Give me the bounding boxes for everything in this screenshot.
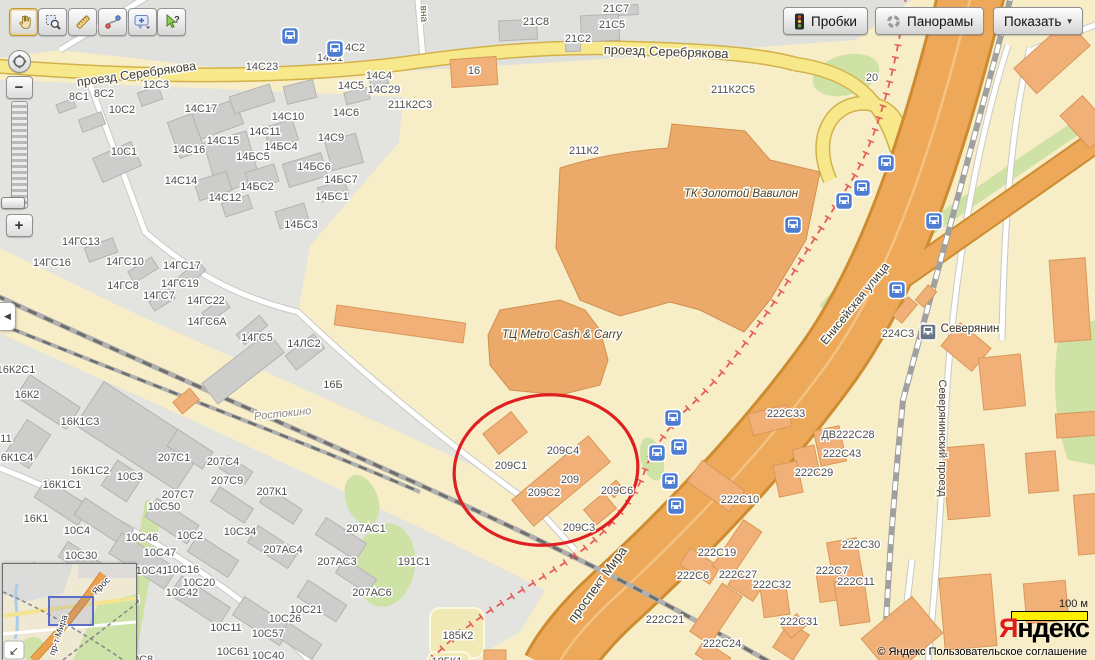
building-label: 207АС1 bbox=[346, 523, 386, 535]
building-label: 209С6 bbox=[601, 485, 633, 497]
building-label: 209С4 bbox=[547, 445, 579, 457]
yandex-maps-app: 14С214С114С2312С38С18С210С214С1714С414С5… bbox=[0, 0, 1095, 660]
building-label: 14С14 bbox=[165, 175, 197, 187]
building-label: 14ГС7 bbox=[143, 290, 175, 302]
building-label: 185К1 bbox=[432, 656, 463, 660]
building-label: 207С1 bbox=[158, 452, 190, 464]
building-label: 207С4 bbox=[207, 456, 239, 468]
street-label: Северянинский проезд bbox=[936, 379, 948, 497]
bus-stop-icon[interactable] bbox=[854, 180, 871, 197]
bus-stop-icon[interactable] bbox=[668, 498, 685, 515]
building-label: 222С6 bbox=[677, 570, 709, 582]
building-label: 14ГС16 bbox=[33, 257, 71, 269]
arrow-down-left-icon: ↙ bbox=[9, 644, 19, 658]
building-label: 10С11 bbox=[210, 622, 242, 634]
building-orange[interactable] bbox=[978, 354, 1025, 410]
zoom-select-tool-button[interactable] bbox=[38, 8, 67, 36]
building-label: 8С2 bbox=[94, 88, 114, 100]
building-label: 222С32 bbox=[753, 579, 792, 591]
add-placemark-tool-icon bbox=[134, 14, 151, 30]
building-label: 222С43 bbox=[823, 448, 862, 460]
building-label: 10С1 bbox=[111, 146, 137, 158]
building-label: 10С42 bbox=[166, 587, 198, 599]
pan-tool-button[interactable] bbox=[9, 8, 38, 36]
scale-label: 100 м bbox=[1059, 598, 1088, 610]
building-label: 14ГС8 bbox=[107, 280, 139, 292]
building-label: 14БС7 bbox=[324, 174, 357, 186]
traffic-button[interactable]: Пробки bbox=[783, 7, 868, 35]
building-label: 10С40 bbox=[252, 650, 284, 660]
building-label: 11 bbox=[0, 433, 11, 445]
inspect-tool-icon: ? bbox=[164, 14, 180, 30]
building-label: 224С3 bbox=[882, 328, 914, 340]
show-dropdown-button[interactable]: Показать ▾ bbox=[993, 7, 1083, 35]
zoom-slider-track[interactable] bbox=[11, 101, 28, 209]
building-label: 222С10 bbox=[721, 494, 760, 506]
minimap-gray-area2 bbox=[78, 564, 136, 578]
building-orange[interactable] bbox=[484, 650, 506, 660]
traffic-button-label: Пробки bbox=[811, 14, 857, 29]
building-orange[interactable] bbox=[1025, 451, 1058, 493]
building-label: 14С10 bbox=[272, 111, 304, 123]
building-label: 10С2 bbox=[177, 530, 203, 542]
building-label: 10С57 bbox=[252, 628, 284, 640]
building-label: 16К1С2 bbox=[71, 465, 110, 477]
building-orange[interactable] bbox=[942, 444, 990, 519]
bus-stop-icon[interactable] bbox=[649, 445, 666, 462]
building-label: 207С9 bbox=[211, 475, 243, 487]
bus-stop-icon[interactable] bbox=[665, 410, 682, 427]
building-label: 14ГС6А bbox=[187, 316, 227, 328]
bus-stop-icon[interactable] bbox=[282, 28, 299, 45]
building-label: 14С6 bbox=[333, 107, 359, 119]
building-label: 207АС3 bbox=[317, 556, 357, 568]
zoom-select-tool-icon bbox=[45, 14, 61, 30]
building-label: 16К1С4 bbox=[0, 452, 33, 464]
building-label: 14ЛС2 bbox=[287, 338, 321, 350]
building-label: 222С11 bbox=[837, 576, 875, 588]
building-label: 16К1С3 bbox=[61, 416, 100, 428]
building-label: 10С47 bbox=[144, 547, 176, 559]
add-placemark-tool-button[interactable] bbox=[128, 8, 157, 36]
building-label: 14С11 bbox=[249, 126, 281, 138]
logo-lead-letter: Я bbox=[999, 613, 1017, 643]
building-label: 20 bbox=[866, 72, 878, 84]
building-label: ДВ222С28 bbox=[821, 429, 874, 441]
building-label: 14ГС5 bbox=[241, 332, 273, 344]
building-label: 222С29 bbox=[795, 467, 834, 479]
building-label: 209С2 bbox=[528, 487, 560, 499]
bus-stop-icon[interactable] bbox=[878, 155, 895, 172]
building-label: 209 bbox=[561, 474, 579, 486]
building-label: 10С50 bbox=[148, 501, 180, 513]
panel-collapse-button[interactable]: ◀ bbox=[0, 302, 16, 331]
compass-icon bbox=[12, 54, 27, 69]
building-label: 10С16 bbox=[167, 564, 199, 576]
building-label: 14С16 bbox=[173, 144, 205, 156]
minimap-river bbox=[15, 584, 17, 639]
building-label: 207АС4 bbox=[263, 544, 303, 556]
building-label: 16К1 bbox=[24, 513, 49, 525]
yandex-logo[interactable]: Яндекс bbox=[999, 613, 1089, 644]
building-label: 222С31 bbox=[780, 616, 819, 628]
building-label: 10С41 bbox=[136, 565, 168, 577]
building-label: 14ГС10 bbox=[106, 256, 144, 268]
building-label: 211К2С5 bbox=[711, 84, 755, 96]
building-label: 8С1 bbox=[69, 91, 89, 103]
building-label: 14С23 bbox=[246, 61, 278, 73]
building-label: 14ГС17 bbox=[163, 260, 201, 272]
minimap-viewport-rect[interactable] bbox=[49, 597, 93, 625]
inspect-tool-button[interactable]: ? bbox=[157, 8, 186, 36]
bus-stop-icon[interactable] bbox=[889, 282, 906, 299]
building-label: 14С4 bbox=[366, 70, 392, 82]
street-label: Северянин bbox=[941, 323, 1000, 335]
building-label: 211К2С3 bbox=[388, 99, 432, 111]
map-canvas[interactable]: 14С214С114С2312С38С18С210С214С1714С414С5… bbox=[0, 0, 1095, 660]
building-label: 10С4 bbox=[64, 525, 90, 537]
building-label: 14БС5 bbox=[236, 151, 269, 163]
building-label: 14ГС19 bbox=[161, 278, 199, 290]
copyright-bar: © Яндекс Пользовательское соглашение bbox=[877, 646, 1087, 658]
route-tool-icon bbox=[105, 14, 121, 30]
bus-stop-icon[interactable] bbox=[662, 473, 679, 490]
building-label: 16 bbox=[468, 65, 480, 77]
bus-stop-icon[interactable] bbox=[926, 213, 943, 230]
building-label: 14С9 bbox=[318, 132, 344, 144]
building-label: 10С46 bbox=[126, 532, 158, 544]
panoramas-icon bbox=[886, 14, 901, 29]
building-label: 14БС1 bbox=[315, 191, 348, 203]
copyright-text: © Яндекс bbox=[877, 646, 925, 658]
building-orange[interactable] bbox=[1049, 258, 1091, 342]
building-label: 14БС2 bbox=[240, 181, 273, 193]
building-label: 10С61 bbox=[217, 646, 249, 658]
building-label: 222С30 bbox=[842, 539, 881, 551]
building-label: 14С29 bbox=[368, 84, 400, 96]
building-label: 16К1С1 bbox=[43, 479, 82, 491]
building-label: 21С7 bbox=[603, 3, 629, 15]
building-label: 12С3 bbox=[143, 79, 169, 91]
user-agreement-link[interactable]: Пользовательское соглашение bbox=[929, 646, 1087, 658]
zoom-out-button[interactable]: − bbox=[6, 76, 33, 99]
building-label: 14ГС13 bbox=[62, 236, 100, 248]
building-label: 207К1 bbox=[257, 486, 288, 498]
ruler-tool-icon bbox=[75, 14, 91, 30]
route-tool-button[interactable] bbox=[98, 8, 127, 36]
svg-text:?: ? bbox=[174, 15, 180, 25]
building-label: 14ГС22 bbox=[187, 295, 225, 307]
minimap-collapse-button[interactable]: ↙ bbox=[4, 641, 24, 659]
zoom-slider-handle[interactable] bbox=[1, 197, 25, 209]
street-label: ТЦ Metro Cash & Carry bbox=[502, 329, 623, 341]
street-label: вна bbox=[418, 5, 430, 22]
logo-rest: ндекс bbox=[1017, 613, 1089, 643]
chevron-down-icon: ▾ bbox=[1067, 16, 1072, 27]
zoom-in-button[interactable]: + bbox=[6, 214, 33, 237]
pan-tool-icon bbox=[16, 14, 32, 30]
building-label: 191С1 bbox=[398, 556, 430, 568]
overview-minimap[interactable]: Яроспр-т Мира ↙ bbox=[2, 563, 137, 660]
bus-stop-icon[interactable] bbox=[785, 217, 802, 234]
zoom-control: − + bbox=[5, 50, 33, 239]
building-label: 222С21 bbox=[646, 614, 685, 626]
building-label: 14БС6 bbox=[297, 161, 330, 173]
bus-stop-icon[interactable] bbox=[327, 41, 344, 58]
building-label: 16Б bbox=[323, 379, 342, 391]
panoramas-button-label: Панорамы bbox=[907, 14, 973, 29]
ruler-tool-button[interactable] bbox=[68, 8, 97, 36]
building-label: 21С2 bbox=[565, 33, 591, 45]
building-orange[interactable] bbox=[1055, 410, 1095, 438]
building-label: 14С12 bbox=[209, 192, 241, 204]
building-label: 10С3 bbox=[117, 471, 143, 483]
building-label: 14БС3 bbox=[284, 219, 317, 231]
building-label: 211К2 bbox=[569, 145, 599, 157]
building-label: 14С5 bbox=[338, 80, 364, 92]
building-orange[interactable] bbox=[939, 574, 997, 650]
bus-stop-icon[interactable] bbox=[836, 193, 853, 210]
building-label: 185К2 bbox=[443, 630, 474, 642]
traffic-light-icon bbox=[794, 13, 805, 30]
building-label: 209С1 bbox=[495, 460, 527, 472]
building-label: 222С24 bbox=[703, 638, 742, 650]
panoramas-button[interactable]: Панорамы bbox=[875, 7, 984, 35]
building-label: 14С17 bbox=[185, 103, 217, 115]
building-label: 209С3 bbox=[563, 522, 595, 534]
building-label: 222С27 bbox=[719, 569, 758, 581]
building-label: 222С19 bbox=[698, 547, 737, 559]
show-dropdown-label: Показать bbox=[1004, 14, 1061, 29]
building-label: 207С7 bbox=[162, 489, 194, 501]
building-label: 21С8 bbox=[523, 16, 549, 28]
building-label: 16К2 bbox=[15, 389, 40, 401]
building-label: 14С15 bbox=[207, 135, 239, 147]
bus-stop-icon[interactable] bbox=[671, 439, 688, 456]
building-label: 10С2 bbox=[109, 104, 135, 116]
building-label: 222С33 bbox=[767, 408, 806, 420]
building-label: 10С34 bbox=[224, 526, 256, 538]
building-label: 21С5 bbox=[599, 19, 625, 31]
building-label: 10С26 bbox=[269, 613, 301, 625]
compass-button[interactable] bbox=[8, 50, 31, 73]
building-label: 10С30 bbox=[65, 550, 97, 562]
building-label: 207АС6 bbox=[352, 587, 392, 599]
railway-station-icon[interactable] bbox=[920, 324, 936, 340]
street-label: ТК Золотой Вавилон bbox=[684, 188, 799, 200]
building-label: 16К2С1 bbox=[0, 364, 35, 376]
